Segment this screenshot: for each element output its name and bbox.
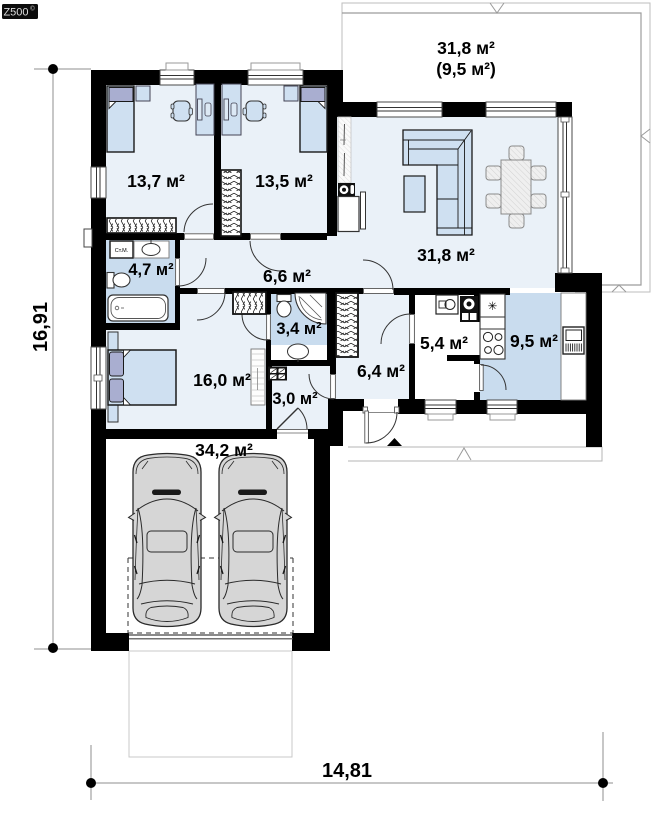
svg-text:16,91: 16,91 bbox=[30, 302, 52, 352]
svg-text:4,7 м²: 4,7 м² bbox=[128, 261, 174, 279]
svg-text:5,4 м²: 5,4 м² bbox=[420, 333, 468, 353]
svg-text:9,5 м²: 9,5 м² bbox=[510, 331, 558, 351]
svg-text:(9,5 м²): (9,5 м²) bbox=[436, 59, 496, 79]
svg-text:13,5 м²: 13,5 м² bbox=[255, 171, 313, 191]
svg-text:6,6 м²: 6,6 м² bbox=[263, 266, 311, 286]
svg-text:13,7 м²: 13,7 м² bbox=[127, 171, 185, 191]
svg-text:6,4 м²: 6,4 м² bbox=[357, 361, 405, 381]
svg-text:Z500: Z500 bbox=[3, 6, 28, 18]
svg-text:3,0 м²: 3,0 м² bbox=[272, 390, 318, 408]
svg-text:✳: ✳ bbox=[488, 301, 498, 313]
svg-text:31,8 м²: 31,8 м² bbox=[417, 245, 475, 265]
svg-text:©: © bbox=[30, 6, 35, 13]
svg-text:3,4 м²: 3,4 м² bbox=[276, 320, 322, 338]
svg-text:31,8 м²: 31,8 м² bbox=[437, 38, 495, 58]
svg-text:Ст.М.: Ст.М. bbox=[115, 248, 129, 254]
svg-text:34,2 м²: 34,2 м² bbox=[195, 440, 253, 460]
svg-text:14,81: 14,81 bbox=[322, 760, 372, 782]
svg-text:16,0 м²: 16,0 м² bbox=[193, 370, 251, 390]
